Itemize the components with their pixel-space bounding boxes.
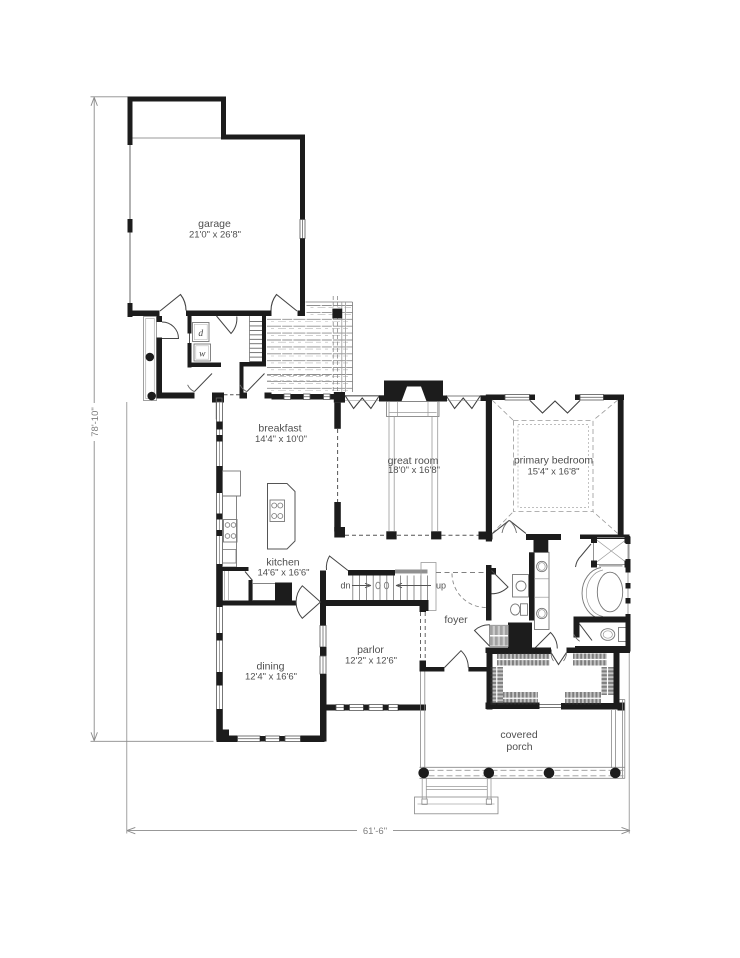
svg-text:porch: porch xyxy=(506,741,532,753)
svg-text:w: w xyxy=(199,350,206,360)
svg-text:parlor: parlor xyxy=(357,644,384,656)
svg-text:d: d xyxy=(198,329,203,339)
svg-text:breakfast: breakfast xyxy=(258,423,301,435)
svg-text:foyer: foyer xyxy=(444,614,468,626)
svg-text:61'-6": 61'-6" xyxy=(363,826,387,837)
svg-text:21'0" x 26'8": 21'0" x 26'8" xyxy=(189,230,241,241)
svg-text:12'2" x 12'6": 12'2" x 12'6" xyxy=(345,656,397,667)
svg-text:up: up xyxy=(436,581,446,591)
svg-text:15'4" x 16'8": 15'4" x 16'8" xyxy=(527,467,579,478)
svg-text:garage: garage xyxy=(198,218,231,230)
svg-text:primary bedroom: primary bedroom xyxy=(514,455,594,467)
svg-text:12'4" x 16'6": 12'4" x 16'6" xyxy=(245,672,297,683)
svg-text:14'4" x 10'0": 14'4" x 10'0" xyxy=(255,434,307,445)
svg-text:dn: dn xyxy=(340,581,350,591)
svg-text:14'6" x 16'6": 14'6" x 16'6" xyxy=(257,568,309,579)
svg-text:78'-10": 78'-10" xyxy=(90,407,101,436)
svg-text:covered: covered xyxy=(500,729,538,741)
svg-text:18'0" x 16'8": 18'0" x 16'8" xyxy=(388,465,440,476)
